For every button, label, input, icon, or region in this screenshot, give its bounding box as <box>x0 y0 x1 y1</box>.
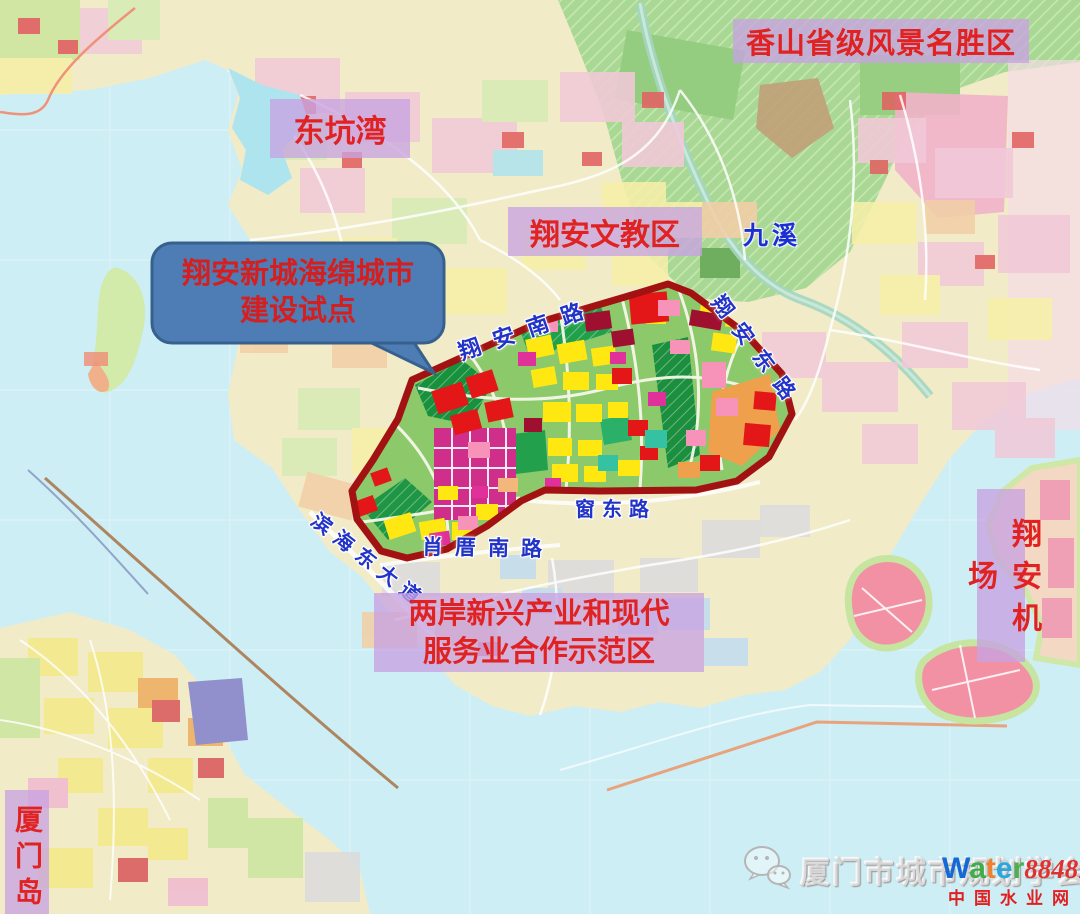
brand-letter-w: W <box>942 852 969 885</box>
callout-line2: 建设试点 <box>240 293 356 330</box>
road-label-xiaocuo-south: 肖厝南路 <box>422 531 555 563</box>
cooperation-zone-line1: 两岸新兴产业和现代 <box>408 595 669 633</box>
road-label-chuangdong: 窗东路 <box>575 493 656 522</box>
label-overlay: 香山省级风景名胜区 东坑湾 翔安文教区 九溪 翔安新城海绵城市 建设试点 翔安南… <box>0 0 1080 914</box>
label-xiangan-airport: 翔安机场 <box>977 489 1025 662</box>
brand-8848: 8848 <box>1024 854 1078 884</box>
road-label-xiangan-east: 翔安东路 <box>705 289 811 416</box>
map-stage: 香山省级风景名胜区 东坑湾 翔安文教区 九溪 翔安新城海绵城市 建设试点 翔安南… <box>0 0 1080 914</box>
label-xiangshan-scenic-area: 香山省级风景名胜区 <box>733 19 1029 63</box>
callout-line1: 翔安新城海绵城市 <box>182 256 414 293</box>
cooperation-zone-line2: 服务业合作示范区 <box>423 633 655 671</box>
brand-letter-a: a <box>969 852 986 885</box>
label-wenjiao-district: 翔安文教区 <box>508 207 702 256</box>
watermark-brand: Water8848.com <box>942 852 1080 886</box>
brand-letter-t: t <box>986 852 996 885</box>
label-cooperation-zone: 两岸新兴产业和现代 服务业合作示范区 <box>374 593 704 672</box>
watermark: 厦门市城市规划学会 Water8848.com 中国水业网 <box>742 840 1072 910</box>
brand-letter-e: e <box>996 852 1013 885</box>
label-dongkeng-bay: 东坑湾 <box>270 99 410 158</box>
callout-pilot-text: 翔安新城海绵城市 建设试点 <box>152 244 444 342</box>
label-jiuxi-river: 九溪 <box>743 216 801 252</box>
brand-letter-r: r <box>1013 852 1025 885</box>
road-label-xiangan-south: 翔安南路 <box>454 289 601 366</box>
label-xiamen-island: 厦门岛 <box>5 790 49 914</box>
watermark-china-water-site: 中国水业网 <box>948 884 1078 909</box>
